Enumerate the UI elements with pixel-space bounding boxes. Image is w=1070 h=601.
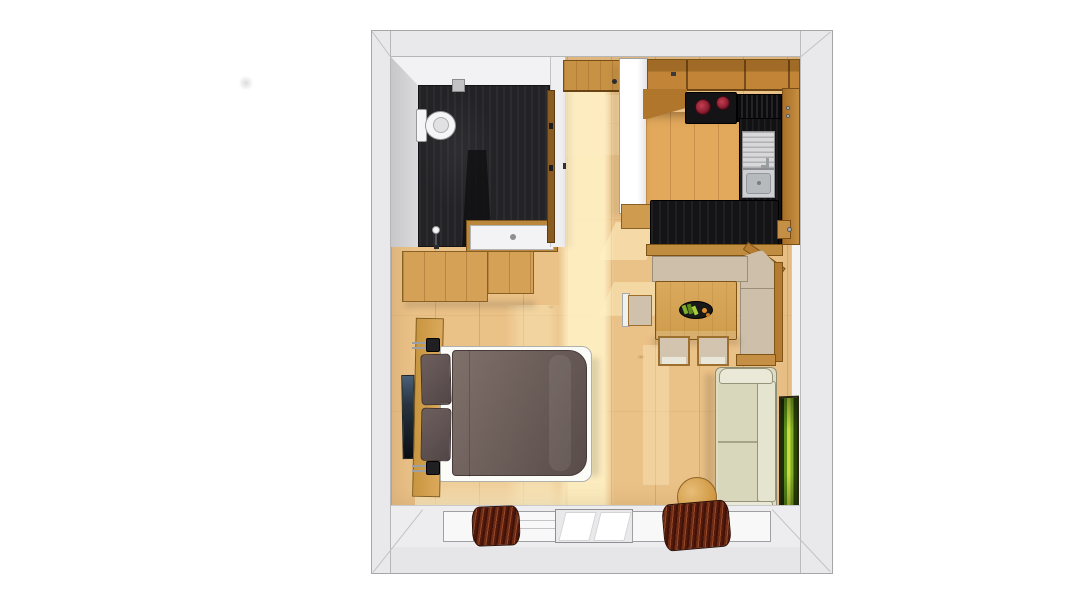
duvet-fold-line: [469, 351, 470, 477]
cooktop: [685, 92, 737, 124]
cabinet-hinge: [786, 106, 790, 110]
kitchen-floor: [646, 112, 741, 204]
pillow: [420, 354, 451, 406]
watermark-smudge: [239, 75, 253, 91]
green-artwork: [779, 396, 799, 509]
door-hinge-mark: [549, 123, 553, 129]
sofa-backrest: [757, 381, 776, 502]
knob-dot: [787, 227, 792, 232]
upper-cabinet-row: [647, 59, 800, 91]
wall-top: [372, 31, 832, 57]
bench-end-wood: [736, 354, 776, 366]
wall-right: [800, 31, 832, 573]
sofa-armrest: [719, 368, 773, 384]
chair-backrest-edge: [701, 357, 725, 364]
dresser: [402, 251, 488, 302]
window-frame: [517, 511, 557, 542]
pleated-curtain-right: [661, 499, 732, 552]
bathroom-ceiling-band: [391, 57, 551, 86]
window-frame: [632, 511, 666, 542]
sink-drain: [757, 181, 761, 185]
bench-right-rail: [774, 262, 783, 362]
door-hinge-mark: [549, 165, 553, 171]
bench-top-cushion: [652, 256, 748, 282]
pillow: [421, 408, 452, 462]
glass-pane: [558, 512, 596, 541]
cooktop-burner: [716, 96, 730, 110]
reading-light: [426, 338, 440, 352]
entry-door: [563, 60, 622, 92]
bench-right-cushion: [740, 288, 776, 358]
chair-backrest-edge: [662, 357, 686, 364]
chair-seat: [697, 336, 729, 366]
cabinet-divider: [744, 60, 746, 90]
vanity-faucet: [510, 234, 516, 240]
sofa-seat-seam: [718, 441, 758, 443]
cooktop-burner: [695, 99, 711, 115]
toilet-bowl-inner: [433, 117, 449, 133]
cabinet-handle: [671, 72, 676, 76]
cabinet-divider: [788, 60, 790, 90]
reading-light: [426, 461, 440, 475]
pleated-curtain-left: [471, 505, 520, 547]
duvet: [452, 350, 587, 476]
wall-left: [372, 31, 391, 573]
window-glass: [555, 509, 633, 543]
glass-pane: [593, 512, 631, 541]
cabinet-plinth: [621, 204, 652, 229]
duvet-highlight: [549, 355, 571, 471]
cabinet-divider: [686, 60, 688, 90]
dresser-right-section: [487, 251, 534, 294]
sink-faucet-arm: [761, 165, 769, 168]
shower-base: [434, 245, 439, 249]
tall-white-cabinet: [619, 58, 648, 214]
floorplan-render: [0, 0, 1070, 601]
food-garnish: [706, 313, 710, 317]
entry-door-handle: [612, 79, 617, 84]
window-frame: [727, 511, 771, 542]
bathroom-left-wall-face: [391, 57, 420, 247]
wall-vent: [452, 79, 465, 92]
floor-door-stop: [563, 163, 566, 169]
window-frame: [443, 511, 474, 542]
sink-drainboard: [742, 131, 775, 169]
shower-head: [432, 226, 440, 234]
chair-head-seat: [628, 295, 652, 326]
bar-counter: [650, 200, 779, 245]
cabinet-hinge: [786, 114, 790, 118]
wall-bottom: [391, 546, 800, 573]
chair-seat: [658, 336, 690, 366]
